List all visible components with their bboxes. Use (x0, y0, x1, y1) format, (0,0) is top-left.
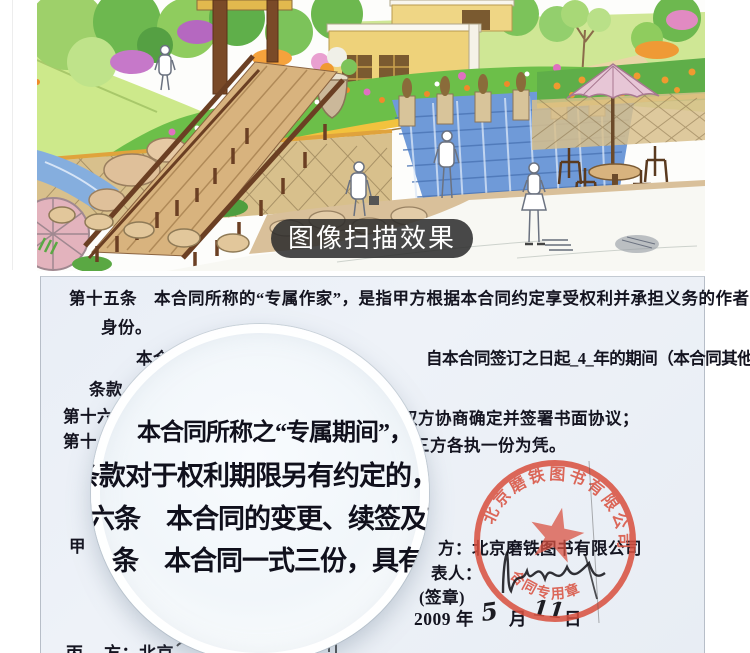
signature (489, 545, 639, 607)
magnified-line-4: 条 本合同一式三份，具有同等的 (112, 539, 429, 578)
page-edge-line (12, 0, 13, 270)
scanner-demo-screenshot: 图像扫描效果 第十五条 本合同所称的“专属作家”，是指甲方根据本合同约定享受权利… (0, 0, 750, 653)
contract-document: 第十五条 本合同所称的“专属作家”，是指甲方根据本合同约定享受权利并承担义务的作… (40, 276, 705, 653)
magnifier-lens: 本合同所称之“专属期间”， 条款对于权利期限另有约定的，从其 六条 本合同的变更… (91, 324, 429, 653)
contract-line-17-right: 三方各执一份为凭。 (413, 432, 566, 456)
magnified-line-2: 条款对于权利期限另有约定的，从其 (91, 454, 429, 493)
contract-line-term-right: 自本合同签订之日起_4_年的期间（本合同其他 (426, 345, 750, 369)
contract-line-17-left: 第十 (63, 428, 97, 452)
date-year: 2009 年 (414, 606, 474, 631)
scan-effect-label: 图像扫描效果 (271, 219, 473, 258)
seal-label: (签章) (419, 584, 465, 608)
contract-line-15: 第十五条 本合同所称的“专属作家”，是指甲方根据本合同约定享受权利并承担义务的作… (69, 285, 750, 309)
party-c-label: 丙 (66, 639, 84, 653)
contract-line-15b: 身份。 (101, 314, 152, 338)
magnified-line-1: 本合同所称之“专属期间”， (137, 412, 412, 447)
party-a-label: 甲 (69, 533, 86, 557)
magnified-line-3: 六条 本合同的变更、续签及其他未尽 (91, 497, 429, 536)
contract-line-16-right: 双方协商确定并签署书面协议； (401, 405, 639, 429)
scan-effect-label-text: 图像扫描效果 (288, 223, 456, 253)
party-c-value: 方：北京 (104, 639, 174, 653)
